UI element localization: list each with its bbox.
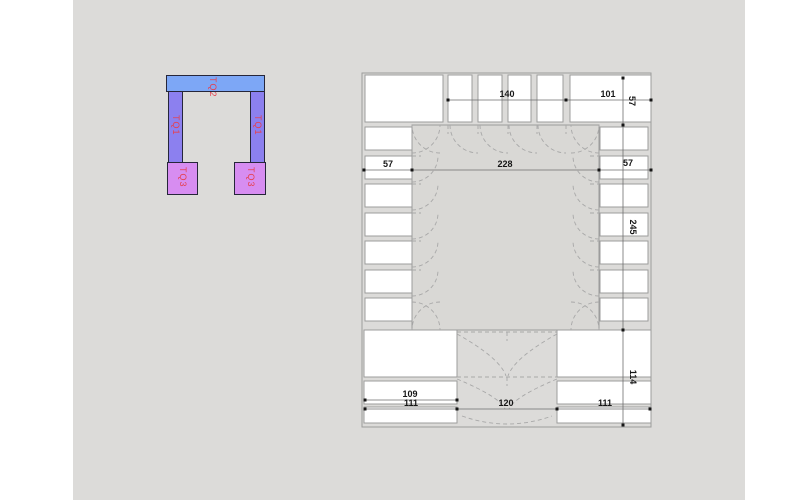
panel[interactable] (365, 213, 412, 236)
panel-column-right (600, 127, 648, 321)
panel[interactable] (365, 241, 412, 264)
floor-plan: 140 101 57 228 57 109 111 120 111 57 245… (0, 0, 800, 500)
panel[interactable] (365, 184, 412, 207)
panel[interactable] (600, 127, 648, 150)
dimension-label: 228 (497, 159, 512, 169)
dimension-label: 140 (499, 89, 514, 99)
dimension-label: 114 (628, 370, 638, 385)
panel[interactable] (478, 75, 502, 122)
panel-column-left (365, 127, 412, 321)
panel[interactable] (365, 75, 443, 122)
panel[interactable] (600, 241, 648, 264)
panel[interactable] (537, 75, 563, 122)
dimension-label: 111 (598, 398, 612, 408)
dimension-label: 57 (623, 158, 633, 168)
dimension-label: 120 (498, 398, 513, 408)
dimension-label: 101 (600, 89, 615, 99)
panel[interactable] (364, 330, 457, 377)
panel[interactable] (365, 298, 412, 321)
panel[interactable] (600, 270, 648, 293)
dimension-label: 57 (627, 96, 637, 106)
panel[interactable] (600, 184, 648, 207)
panel[interactable] (365, 127, 412, 150)
panel[interactable] (365, 270, 412, 293)
panel[interactable] (600, 298, 648, 321)
dimension-label: 57 (383, 159, 393, 169)
panel[interactable] (600, 213, 648, 236)
plan-inner-area (412, 125, 599, 330)
panel[interactable] (448, 75, 472, 122)
dimension-label: 245 (628, 219, 638, 234)
dimension-label: 111 (404, 398, 418, 408)
